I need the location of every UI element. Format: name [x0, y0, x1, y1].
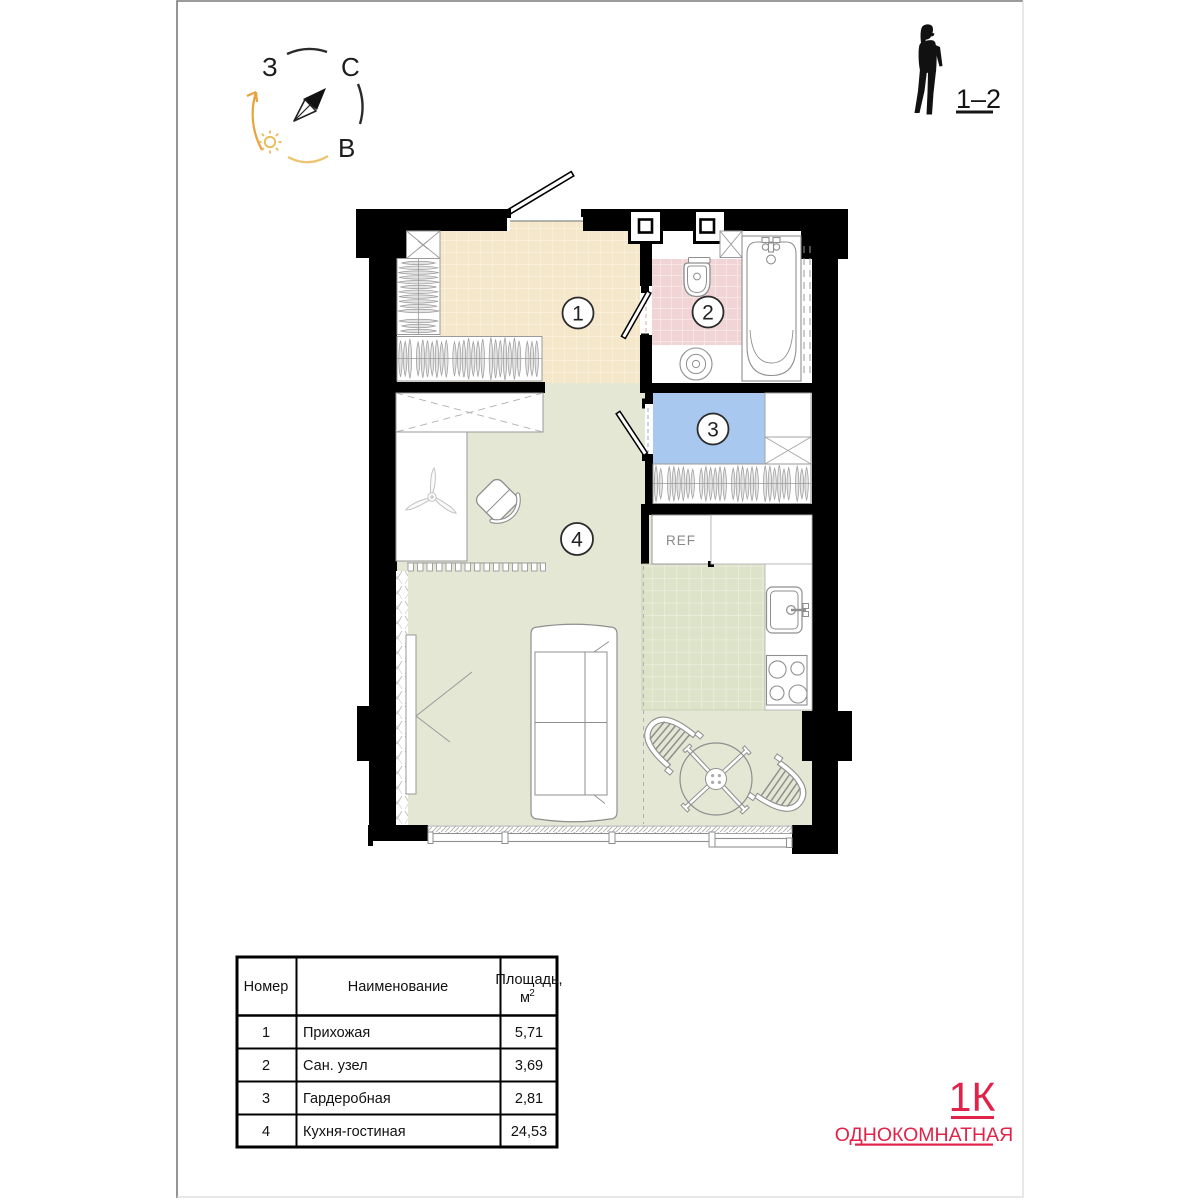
svg-text:REF: REF — [666, 533, 696, 548]
svg-text:3: 3 — [707, 419, 719, 442]
svg-text:24,53: 24,53 — [511, 1124, 547, 1140]
svg-text:1: 1 — [262, 1025, 270, 1041]
svg-text:Прихожая: Прихожая — [303, 1025, 370, 1041]
svg-text:Номер: Номер — [244, 979, 289, 995]
svg-text:5,71: 5,71 — [515, 1025, 543, 1041]
svg-text:4: 4 — [262, 1124, 270, 1140]
svg-text:В: В — [338, 133, 355, 163]
svg-text:3,69: 3,69 — [515, 1058, 543, 1074]
svg-text:3: 3 — [262, 1091, 270, 1107]
svg-text:2: 2 — [262, 1058, 270, 1074]
svg-text:Гардеробная: Гардеробная — [303, 1091, 391, 1107]
svg-text:ОДНОКОМНАТНАЯ: ОДНОКОМНАТНАЯ — [835, 1124, 1013, 1146]
svg-text:4: 4 — [571, 529, 583, 552]
svg-text:Кухня-гостиная: Кухня-гостиная — [303, 1124, 406, 1140]
svg-text:Наименование: Наименование — [348, 979, 449, 995]
svg-text:2: 2 — [529, 988, 535, 999]
svg-text:2: 2 — [702, 302, 714, 325]
svg-text:Площадь,: Площадь, — [495, 972, 562, 988]
svg-text:2,81: 2,81 — [515, 1091, 543, 1107]
svg-text:С: С — [341, 52, 360, 82]
svg-text:1К: 1К — [949, 1074, 996, 1120]
svg-text:1–2: 1–2 — [956, 84, 1001, 114]
svg-text:З: З — [262, 52, 278, 82]
svg-text:1: 1 — [572, 303, 584, 326]
svg-text:Сан. узел: Сан. узел — [303, 1058, 368, 1074]
